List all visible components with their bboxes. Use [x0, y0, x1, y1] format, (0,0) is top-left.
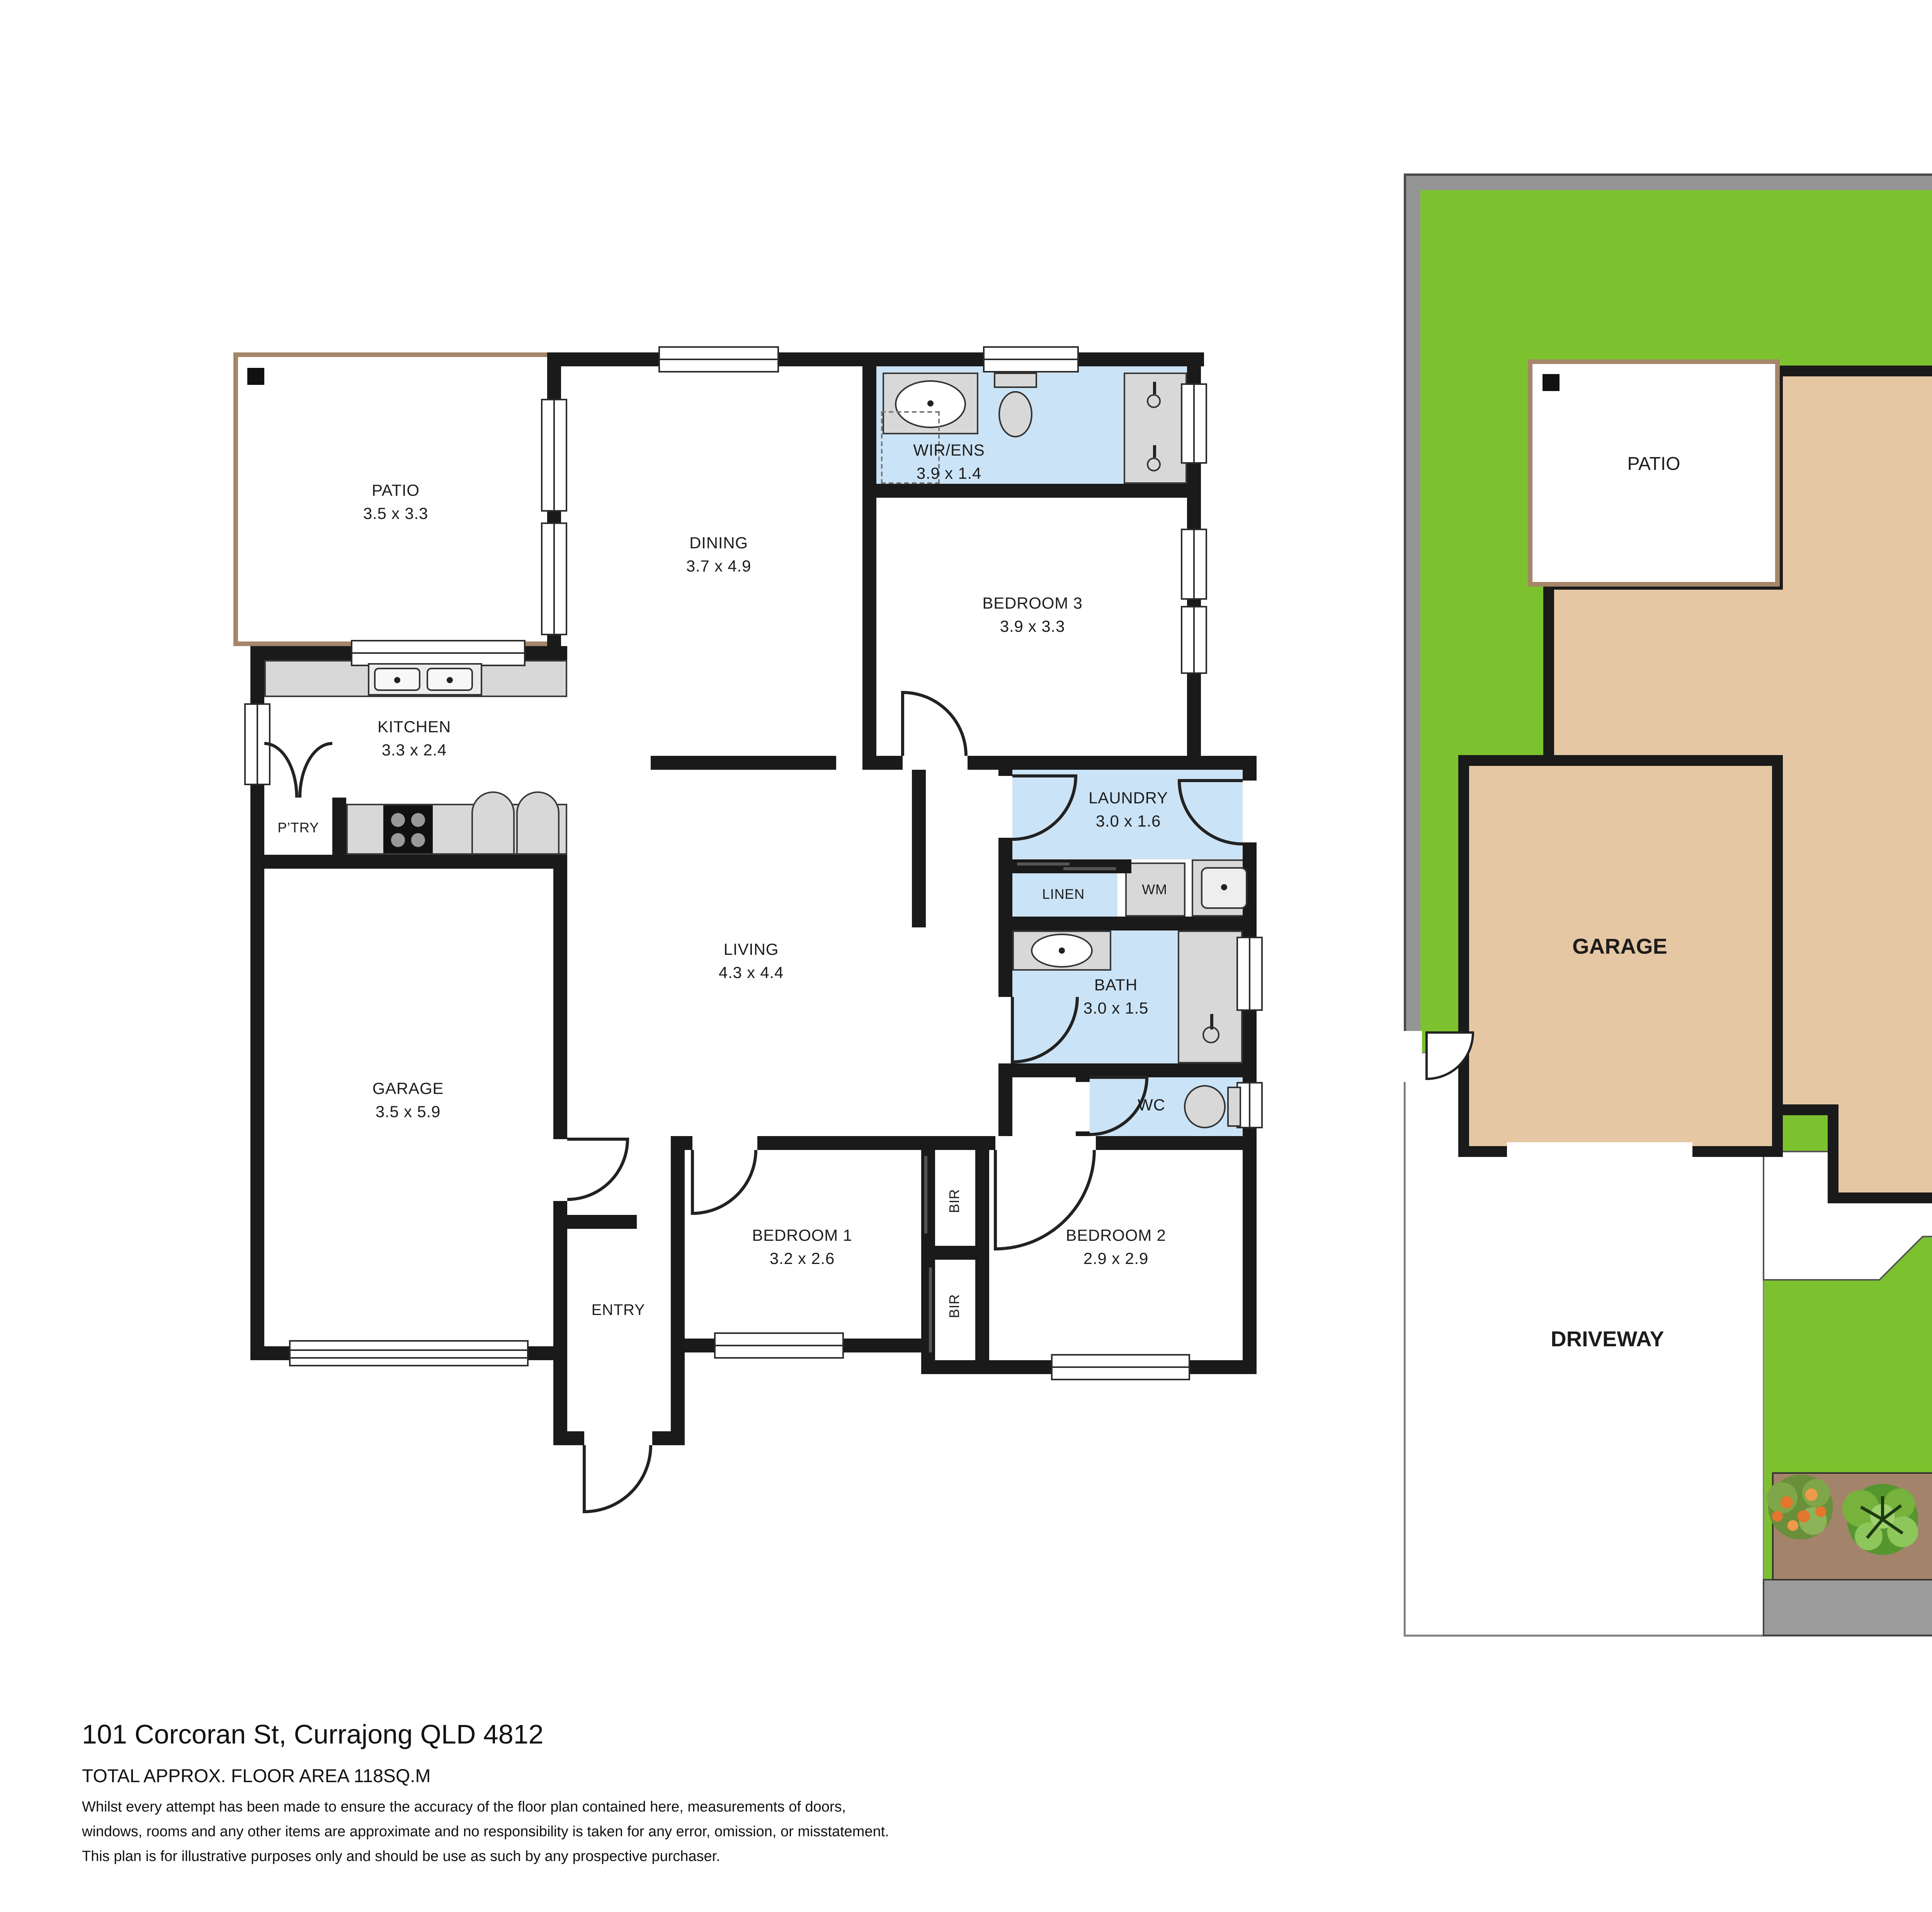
- tap-icon: [447, 677, 453, 683]
- window-icon: [714, 1332, 844, 1359]
- wall: [998, 1063, 1257, 1077]
- robe-rail-icon: [1147, 394, 1161, 408]
- room-name: WIR/ENS: [913, 440, 985, 464]
- room-label-dining: DINING 3.7 x 4.9: [686, 533, 751, 580]
- room-name: BEDROOM 2: [1066, 1225, 1166, 1249]
- wall: [862, 484, 1187, 498]
- wall: [651, 756, 836, 770]
- wall: [560, 1215, 637, 1229]
- room-dims: 3.7 x 4.9: [686, 556, 751, 580]
- disclaimer-line: windows, rooms and any other items are a…: [82, 1824, 889, 1841]
- wall: [671, 1136, 685, 1445]
- room-label-bedroom1: BEDROOM 1 3.2 x 2.6: [752, 1225, 852, 1272]
- toilet-bowl: [998, 391, 1032, 437]
- room-label-kitchen: KITCHEN 3.3 x 2.4: [378, 717, 451, 764]
- room-dims: 4.3 x 4.4: [719, 963, 784, 987]
- shower-head-icon: [1202, 1026, 1219, 1043]
- room-dims: 3.9 x 3.3: [982, 617, 1082, 640]
- door-gap: [903, 756, 968, 770]
- wall: [921, 1246, 989, 1260]
- window-icon: [1051, 1354, 1190, 1380]
- basin-drain: [927, 400, 934, 407]
- basin-drain: [1059, 947, 1065, 954]
- window-icon: [983, 346, 1079, 373]
- toilet-icon: [1227, 1087, 1241, 1127]
- wall: [862, 366, 876, 756]
- site-patio-post: [1543, 374, 1560, 391]
- room-dims: 3.0 x 1.6: [1088, 811, 1168, 835]
- door-gap: [998, 776, 1012, 838]
- toilet-bowl: [1184, 1085, 1226, 1128]
- burner: [391, 833, 405, 847]
- address-title: 101 Corcoran St, Currajong QLD 4812: [82, 1719, 544, 1751]
- room-dims: 3.2 x 2.6: [752, 1249, 852, 1272]
- room-label-entry: ENTRY: [592, 1301, 645, 1323]
- room-dims: 2.9 x 2.9: [1066, 1249, 1166, 1272]
- room-name: LIVING: [719, 939, 784, 963]
- fridge-icon: [471, 791, 515, 855]
- door-leaf: [583, 1445, 586, 1513]
- window-icon: [1236, 937, 1263, 1011]
- sliding-door-icon: [541, 522, 567, 635]
- room-dims: 3.9 x 1.4: [913, 464, 985, 487]
- shower: [1178, 930, 1243, 1063]
- room-dims: 3.3 x 2.4: [378, 740, 451, 764]
- door-gap: [1076, 1082, 1090, 1131]
- room-name: GARAGE: [372, 1078, 444, 1102]
- site-label-driveway: DRIVEWAY: [1551, 1326, 1664, 1351]
- garage-door-icon: [289, 1340, 529, 1366]
- room-label-bedroom3: BEDROOM 3 3.9 x 3.3: [982, 593, 1082, 640]
- window-icon: [1181, 529, 1207, 600]
- wall: [998, 917, 1257, 930]
- window-icon: [1181, 606, 1207, 674]
- room-name: LAUNDRY: [1088, 788, 1168, 811]
- window-icon: [351, 640, 526, 666]
- door-leaf: [994, 1150, 997, 1250]
- window-icon: [1181, 383, 1207, 464]
- window-icon: [658, 346, 779, 373]
- door-gap: [692, 1136, 757, 1150]
- room-dims: 3.0 x 1.5: [1083, 999, 1148, 1022]
- door-leaf: [901, 691, 904, 756]
- door-leaf: [567, 1138, 629, 1141]
- door-gap: [1243, 781, 1257, 842]
- door-leaf: [1011, 997, 1014, 1063]
- door-leaf: [1178, 779, 1243, 782]
- door-leaf: [691, 1150, 694, 1215]
- fridge-icon: [516, 791, 560, 855]
- disclaimer-line: Whilst every attempt has been made to en…: [82, 1799, 846, 1816]
- left-gate-gap: [1400, 1031, 1422, 1082]
- sliding-door-icon: [929, 1267, 931, 1352]
- sliding-door-icon: [1063, 867, 1116, 869]
- window-icon: [541, 399, 567, 512]
- site-label-patio: PATIO: [1628, 453, 1680, 475]
- robe-rail-icon: [1147, 458, 1161, 471]
- wall: [250, 855, 567, 869]
- cooktop-icon: [383, 805, 433, 853]
- site-footpath: [1764, 1580, 1932, 1635]
- site-label-garage: GARAGE: [1572, 934, 1667, 958]
- appliance-label-wm: WM: [1142, 880, 1167, 900]
- room-label-patio: PATIO 3.5 x 3.3: [363, 480, 428, 527]
- room-label-wir-ens: WIR/ENS 3.9 x 1.4: [913, 440, 985, 487]
- floor-area-text: TOTAL APPROX. FLOOR AREA 118SQ.M: [82, 1765, 431, 1787]
- room-label-laundry: LAUNDRY 3.0 x 1.6: [1088, 788, 1168, 835]
- wall: [547, 352, 1204, 366]
- site-garage-door-gap: [1507, 1142, 1692, 1161]
- room-name: BATH: [1083, 975, 1148, 999]
- tub-drain: [1221, 884, 1227, 890]
- room-label-linen: LINEN: [1042, 885, 1085, 905]
- robe-rail-icon: [1153, 445, 1156, 458]
- room-label-bir-bottom: BIR: [945, 1294, 965, 1318]
- toilet-icon: [994, 373, 1037, 388]
- room-name: BEDROOM 1: [752, 1225, 852, 1249]
- room-dims: 3.5 x 3.3: [363, 504, 428, 527]
- disclaimer-line: This plan is for illustrative purposes o…: [82, 1849, 720, 1866]
- room-label-bir-top: BIR: [945, 1189, 965, 1213]
- burner: [411, 813, 425, 827]
- sliding-door-icon: [1017, 862, 1070, 865]
- wall: [975, 1150, 989, 1374]
- wall: [912, 770, 926, 927]
- room-label-bath: BATH 3.0 x 1.5: [1083, 975, 1148, 1022]
- door-leaf: [1090, 1076, 1148, 1079]
- burner: [391, 813, 405, 827]
- page: PATIO RESIDENCE GARAGE DRIVEWAY: [0, 0, 1932, 1912]
- wall: [671, 1136, 1257, 1150]
- robe-rail-icon: [1153, 382, 1156, 394]
- door-gap: [995, 1136, 1096, 1150]
- room-name: KITCHEN: [378, 717, 451, 740]
- room-label-living: LIVING 4.3 x 4.4: [719, 939, 784, 987]
- room-label-pantry: P’TRY: [277, 818, 319, 839]
- room-name: PATIO: [363, 480, 428, 504]
- door-gap: [553, 1139, 567, 1201]
- room-name: BEDROOM 3: [982, 593, 1082, 617]
- sliding-door-icon: [924, 1156, 927, 1233]
- room-name: DINING: [686, 533, 751, 556]
- room-dims: 3.5 x 5.9: [372, 1102, 444, 1126]
- door-leaf: [1012, 774, 1077, 777]
- burner: [411, 833, 425, 847]
- room-label-bedroom2: BEDROOM 2 2.9 x 2.9: [1066, 1225, 1166, 1272]
- wall: [998, 859, 1131, 873]
- room-label-wc: WC: [1138, 1095, 1165, 1119]
- wall: [332, 798, 346, 855]
- tap-icon: [394, 677, 400, 683]
- patio-post: [247, 368, 264, 385]
- door-gap: [584, 1431, 652, 1445]
- room-label-garage: GARAGE 3.5 x 5.9: [372, 1078, 444, 1126]
- door-gap: [998, 997, 1012, 1063]
